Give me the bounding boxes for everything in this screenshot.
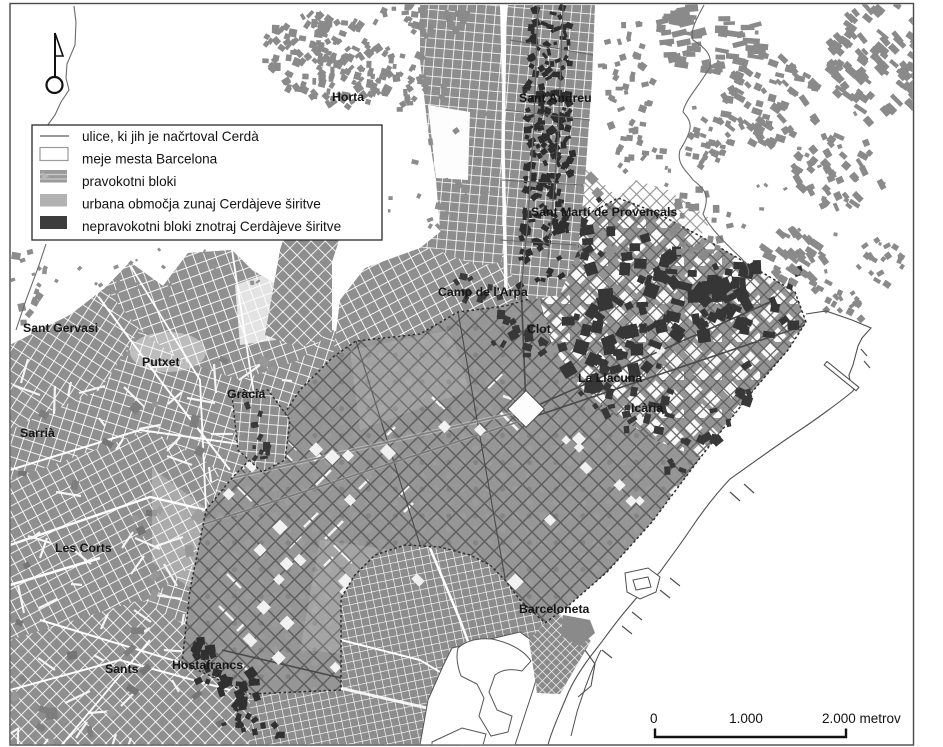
svg-text:Camp de l'Arpa: Camp de l'Arpa bbox=[438, 285, 528, 299]
svg-text:pravokotni bloki: pravokotni bloki bbox=[82, 174, 176, 189]
svg-text:Putxet: Putxet bbox=[142, 355, 180, 369]
svg-text:nepravokotni bloki znotraj Cer: nepravokotni bloki znotraj Cerdàjeve šir… bbox=[82, 219, 341, 234]
svg-text:meje mesta Barcelona: meje mesta Barcelona bbox=[82, 152, 218, 167]
svg-text:Sants: Sants bbox=[105, 662, 139, 676]
svg-text:Sarrià: Sarrià bbox=[20, 426, 55, 440]
svg-text:Sant Andreu: Sant Andreu bbox=[519, 91, 592, 105]
svg-text:1.000: 1.000 bbox=[729, 711, 763, 726]
svg-text:Sant Gervasi: Sant Gervasi bbox=[23, 321, 98, 335]
svg-text:Hostafrancs: Hostafrancs bbox=[172, 658, 243, 672]
svg-text:Horta: Horta bbox=[332, 90, 364, 104]
svg-text:Icària: Icària bbox=[631, 401, 663, 415]
svg-text:Sant Martí de Provençals: Sant Martí de Provençals bbox=[531, 205, 677, 219]
svg-text:0: 0 bbox=[650, 711, 658, 726]
svg-text:urbana območja zunaj Cerdàjeve: urbana območja zunaj Cerdàjeve širitve bbox=[82, 197, 321, 212]
svg-text:ulice, ki jih je načrtoval Cer: ulice, ki jih je načrtoval Cerdà bbox=[82, 129, 259, 144]
svg-text:Clot: Clot bbox=[527, 322, 551, 336]
svg-text:Les Corts: Les Corts bbox=[55, 541, 112, 555]
svg-text:Barceloneta: Barceloneta bbox=[519, 602, 590, 616]
svg-text:Gràcia: Gràcia bbox=[227, 387, 265, 401]
svg-text:2.000 metrov: 2.000 metrov bbox=[822, 711, 901, 726]
svg-text:La Llacuna: La Llacuna bbox=[578, 371, 642, 385]
